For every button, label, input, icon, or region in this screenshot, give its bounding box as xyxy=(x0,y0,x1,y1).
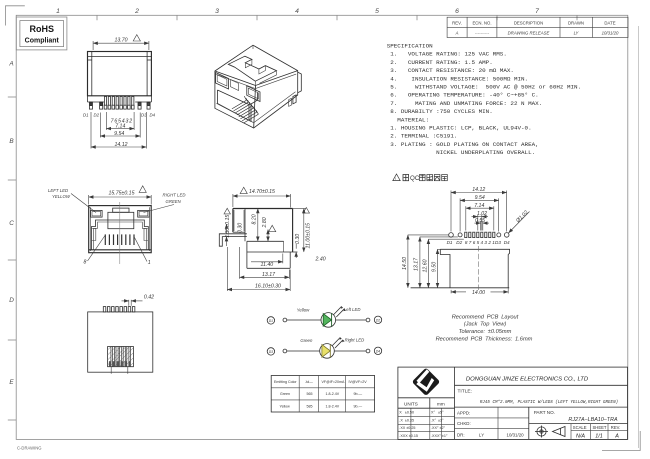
svg-text:14.00: 14.00 xyxy=(472,290,485,296)
svg-text:9b.—: 9b.— xyxy=(354,404,363,408)
svg-text:2.40: 2.40 xyxy=(315,257,326,263)
svg-text:D1: D1 xyxy=(83,113,89,118)
svg-text:Yellow: Yellow xyxy=(297,307,310,312)
svg-text:1: 1 xyxy=(56,8,60,15)
svg-text:Green: Green xyxy=(300,338,313,343)
svg-text:E: E xyxy=(9,379,14,386)
svg-text:DONGGUAN JINZE ELECTRONICS CO.: DONGGUAN JINZE ELECTRONICS CO., LTD xyxy=(466,376,589,382)
svg-text:N/A: N/A xyxy=(576,434,585,440)
svg-text:8. DURABILTY :750 CYCLES MIN.: 8. DURABILTY :750 CYCLES MIN. xyxy=(387,108,493,115)
svg-text:VF@IF=20mA: VF@IF=20mA xyxy=(322,380,346,384)
svg-text:585: 585 xyxy=(307,404,313,408)
svg-text:SHEET: SHEET xyxy=(593,425,607,430)
svg-text:mm: mm xyxy=(437,401,445,406)
svg-text:DRAWING RELEASE: DRAWING RELEASE xyxy=(508,30,550,35)
svg-text:PART NO.: PART NO. xyxy=(534,410,555,415)
svg-text:GREEN: GREEN xyxy=(166,199,182,204)
svg-text:87654321: 87654321 xyxy=(465,240,496,245)
svg-text:0.42: 0.42 xyxy=(144,295,154,301)
svg-text:DR:: DR: xyxy=(457,433,465,438)
svg-text:RIGHT LED: RIGHT LED xyxy=(163,193,186,198)
svg-text:.XXX ±0.15: .XXX ±0.15 xyxy=(399,434,418,438)
svg-text:2. TERMINAL :C5191.: 2. TERMINAL :C5191. xyxy=(387,133,458,140)
svg-text:1/1: 1/1 xyxy=(595,434,603,440)
svg-text:14.12: 14.12 xyxy=(472,187,485,193)
svg-text:X ±0.50: X ±0.50 xyxy=(399,411,414,415)
svg-text:SCALE: SCALE xyxy=(573,425,587,430)
svg-text:9.54: 9.54 xyxy=(475,195,485,201)
svg-text:D4: D4 xyxy=(376,349,380,353)
svg-text:D2: D2 xyxy=(456,240,462,245)
svg-text:C-DRAWING: C-DRAWING xyxy=(17,446,42,451)
svg-text:14.50: 14.50 xyxy=(402,257,408,270)
svg-text:CHKD:: CHKD: xyxy=(457,421,471,426)
svg-text:.X ±0.35: .X ±0.35 xyxy=(399,419,414,423)
svg-text:Recommend PCB Layout: Recommend PCB Layout xyxy=(452,314,519,320)
svg-text:SPECIFICATION: SPECIFICATION xyxy=(387,43,433,50)
svg-text:1.8-2.4V: 1.8-2.4V xyxy=(326,404,340,408)
svg-text:5: 5 xyxy=(375,8,379,15)
svg-text:Left LED: Left LED xyxy=(344,307,361,312)
svg-text:D2: D2 xyxy=(376,318,380,322)
svg-text:0.30: 0.30 xyxy=(295,234,301,244)
svg-text:565: 565 xyxy=(307,392,313,396)
svg-text:16.10±0.30: 16.10±0.30 xyxy=(255,284,281,290)
svg-text:Yellow: Yellow xyxy=(280,404,291,408)
svg-text:A: A xyxy=(455,30,459,35)
svg-text:1. VOLTAGE RATING: 125 VAC R: 1. VOLTAGE RATING: 125 VAC RMS. xyxy=(387,51,507,58)
svg-text:DATE: DATE xyxy=(604,20,615,25)
svg-text:11.40: 11.40 xyxy=(261,262,274,268)
svg-text:QC: QC xyxy=(410,175,420,182)
svg-text:UNITS: UNITS xyxy=(404,401,418,406)
svg-text:REV.: REV. xyxy=(452,20,462,25)
svg-text:7: 7 xyxy=(535,8,539,15)
svg-text:Compliant: Compliant xyxy=(25,38,60,45)
svg-text:4. INSULATION RESISTANCE: 5: 4. INSULATION RESISTANCE: 500MΩ MIN. xyxy=(387,75,528,82)
svg-text:λd—: λd— xyxy=(306,380,314,384)
svg-text:.X° ±3°: .X° ±3° xyxy=(431,419,444,423)
svg-text:D: D xyxy=(9,297,14,304)
svg-text:Emitting Color: Emitting Color xyxy=(274,380,297,384)
svg-text:3. PLATING : GOLD PLATING ON C: 3. PLATING : GOLD PLATING ON CONTACT ARE… xyxy=(387,141,539,148)
svg-text:LEFT LED: LEFT LED xyxy=(48,188,68,193)
svg-text:IV@VF=2V: IV@VF=2V xyxy=(349,380,368,384)
svg-text:D4: D4 xyxy=(150,113,156,118)
svg-text:3: 3 xyxy=(215,8,219,15)
svg-text:15.75±0.15: 15.75±0.15 xyxy=(109,190,135,196)
svg-text:B: B xyxy=(9,138,14,145)
svg-text:1.8-2.4V: 1.8-2.4V xyxy=(326,392,340,396)
svg-text:10/31/20: 10/31/20 xyxy=(507,433,525,438)
svg-text:TITLE:: TITLE: xyxy=(458,389,472,395)
svg-text:3. CONTACT RESISTANCE: 20 mΩ: 3. CONTACT RESISTANCE: 20 mΩ MAX. xyxy=(387,67,514,74)
svg-text:NICKEL UNDERPLATING OVERALL.: NICKEL UNDERPLATING OVERALL. xyxy=(387,149,535,156)
svg-text:RJ45 CM*2.0MM, PLASTIC W/LEDS: RJ45 CM*2.0MM, PLASTIC W/LEDS (LEFT YELL… xyxy=(480,400,618,405)
svg-text:X° ±5°: X° ±5° xyxy=(431,411,444,415)
svg-text:8: 8 xyxy=(84,260,87,266)
svg-text:D1: D1 xyxy=(447,240,453,245)
svg-text:RoHS: RoHS xyxy=(30,24,55,34)
svg-text:4: 4 xyxy=(295,8,299,15)
svg-text:1. HOUSING PLASTIC: LCP, BLACK: 1. HOUSING PLASTIC: LCP, BLACK, UL94V-0. xyxy=(387,125,532,132)
svg-text:12.60: 12.60 xyxy=(422,259,428,272)
svg-text:YELLOW: YELLOW xyxy=(52,194,71,199)
svg-text:1: 1 xyxy=(148,260,151,266)
svg-text:2: 2 xyxy=(134,8,139,15)
svg-text:2.80: 2.80 xyxy=(262,217,268,228)
svg-text:D4: D4 xyxy=(504,240,510,245)
svg-text:.XX ±0.25: .XX ±0.25 xyxy=(399,426,415,430)
svg-text:0.30: 0.30 xyxy=(238,223,244,233)
svg-text:A: A xyxy=(614,434,619,440)
svg-text:(Jack Top View): (Jack Top View) xyxy=(464,322,507,328)
svg-text:11.00±0.15: 11.00±0.15 xyxy=(305,223,311,249)
svg-text:1.30±0.15: 1.30±0.15 xyxy=(225,215,231,238)
svg-text:7. MATING AND UNMATING FOR: 7. MATING AND UNMATING FORCE: 22 N MAX. xyxy=(387,100,543,107)
svg-text:5. WITHSTAND VOLTAGE: 500: 5. WITHSTAND VOLTAGE: 500V AC @ 50Hz or … xyxy=(387,84,581,91)
svg-text:Green: Green xyxy=(280,392,290,396)
svg-text:2. CURRENT RATING: 1.5 AMP.: 2. CURRENT RATING: 1.5 AMP. xyxy=(387,59,493,66)
svg-text:8.20: 8.20 xyxy=(252,214,258,224)
svg-text:13.70: 13.70 xyxy=(115,38,128,44)
svg-text:D1: D1 xyxy=(269,319,273,323)
svg-text:Tolerance: ±0.05mm: Tolerance: ±0.05mm xyxy=(459,329,512,335)
svg-text:D2: D2 xyxy=(94,113,100,118)
svg-text:A: A xyxy=(8,61,13,68)
svg-text:.XXX° ±1°: .XXX° ±1° xyxy=(431,434,448,438)
svg-text:REV.: REV. xyxy=(611,425,620,430)
svg-text:13.17: 13.17 xyxy=(262,272,276,278)
svg-text:RJ27A–LBA10–TRA: RJ27A–LBA10–TRA xyxy=(568,417,618,423)
svg-text:10/31/20: 10/31/20 xyxy=(602,30,619,35)
svg-text:D3: D3 xyxy=(269,350,273,354)
svg-text:ECN. NO.: ECN. NO. xyxy=(472,20,491,25)
svg-text:DESCRIPTION: DESCRIPTION xyxy=(514,20,543,25)
svg-text:9.50: 9.50 xyxy=(431,262,437,272)
svg-text:MATERIAL:: MATERIAL: xyxy=(387,116,429,123)
svg-text:14.70±0.15: 14.70±0.15 xyxy=(249,189,275,195)
svg-text:DRAWN: DRAWN xyxy=(568,20,584,25)
svg-text:9b.—: 9b.— xyxy=(354,392,363,396)
svg-text:!: ! xyxy=(395,176,396,181)
svg-text:13.17: 13.17 xyxy=(414,257,420,271)
svg-text:D3: D3 xyxy=(495,240,501,245)
svg-text:C: C xyxy=(9,220,14,227)
svg-text:6. OPERATING TEMPERATURE: -4: 6. OPERATING TEMPERATURE: -40° C~+85° C. xyxy=(387,92,539,99)
svg-text:----------: ---------- xyxy=(475,30,490,35)
svg-text:.XX° ±2°: .XX° ±2° xyxy=(431,426,446,430)
svg-text:APPD:: APPD: xyxy=(457,411,470,416)
svg-text:Right LED: Right LED xyxy=(345,338,365,343)
svg-text:Recommend PCB Thickness: 1.6mm: Recommend PCB Thickness: 1.6mm xyxy=(436,337,533,343)
svg-text:6: 6 xyxy=(455,8,459,15)
